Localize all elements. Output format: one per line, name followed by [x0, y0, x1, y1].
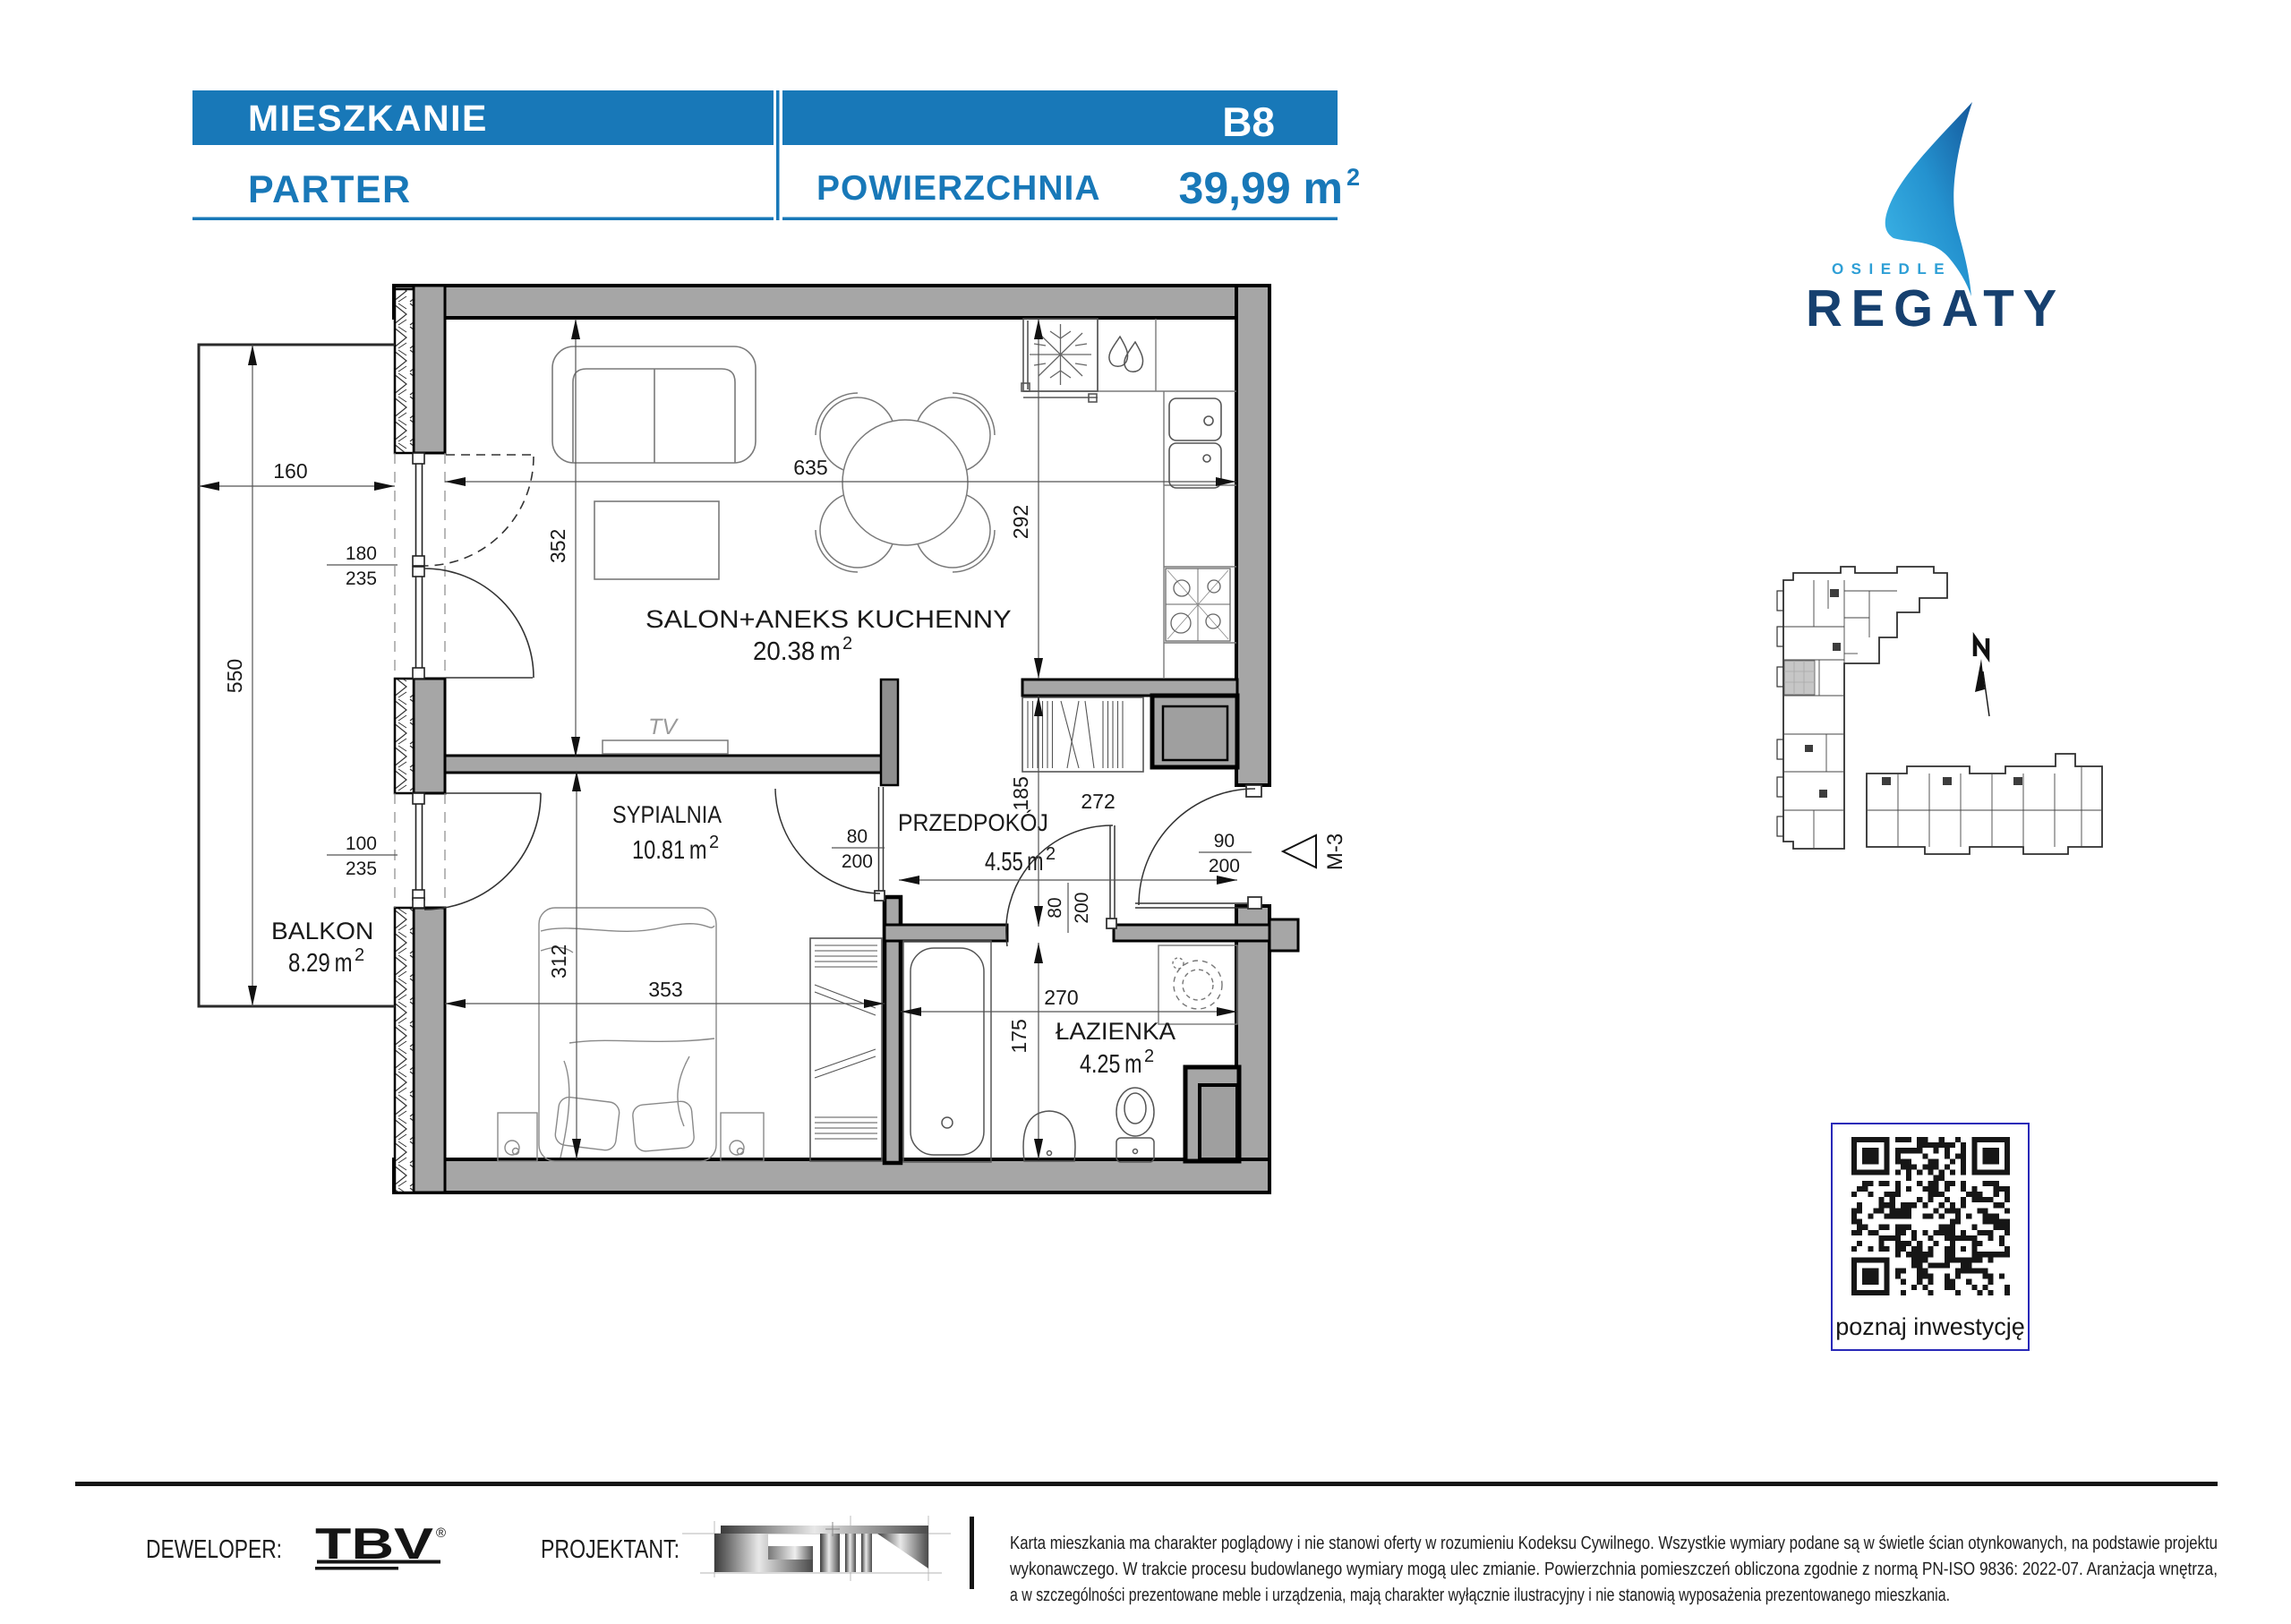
svg-text:2: 2 — [1346, 164, 1360, 191]
svg-text:MIESZKANIE: MIESZKANIE — [248, 98, 488, 139]
svg-text:PARTER: PARTER — [248, 168, 412, 211]
svg-text:39,99 m: 39,99 m — [1179, 163, 1343, 213]
svg-text:DEWELOPER:: DEWELOPER: — [146, 1535, 282, 1564]
svg-text:wykonawczego. W trakcie proces: wykonawczego. W trakcie procesu budowlan… — [1009, 1559, 2218, 1579]
svg-text:PROJEKTANT:: PROJEKTANT: — [541, 1535, 680, 1564]
svg-text:OSIEDLE: OSIEDLE — [1832, 261, 1952, 278]
svg-text:Karta mieszkania ma charakter: Karta mieszkania ma charakter poglądowy … — [1010, 1533, 2218, 1553]
svg-text:a w szczególności prezentowane: a w szczególności prezentowane meble i u… — [1010, 1585, 1950, 1605]
svg-text:POWIERZCHNIA: POWIERZCHNIA — [816, 169, 1101, 208]
svg-text:®: ® — [436, 1526, 446, 1541]
svg-text:REGATY: REGATY — [1806, 279, 2065, 338]
svg-text:poznaj inwestycję: poznaj inwestycję — [1835, 1313, 2025, 1340]
svg-text:B8: B8 — [1222, 98, 1275, 145]
